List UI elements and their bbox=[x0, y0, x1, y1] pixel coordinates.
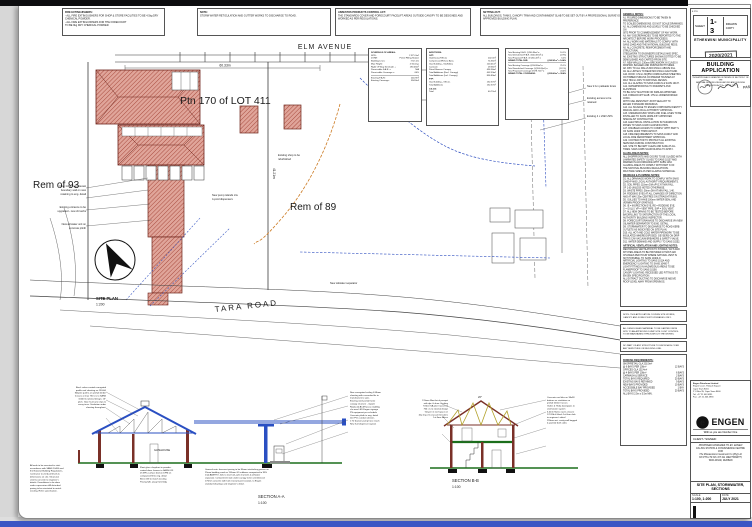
notes-line: NO PART OF ANY STRUCTURE TO ENCROACH OVE… bbox=[623, 344, 684, 347]
notes-line: D10. ALL HOT AND COLD WATER PIPEWORK TO … bbox=[623, 231, 684, 234]
svg-text:Existing 4 x 23kl USTs: Existing 4 x 23kl USTs bbox=[587, 114, 613, 118]
notes-line: A2. ALL DIMENSIONS AND LEVELS TO BE CHEC… bbox=[623, 25, 684, 31]
section-a-label: SECTION A-A bbox=[258, 494, 285, 499]
building-application-box: BUILDING APPLICATION THIS APPROVAL IS GR… bbox=[690, 60, 751, 107]
notes-line: STEELWORK TO ENGINEER'S DETAILS AND SPEC… bbox=[623, 52, 684, 55]
section-b-left-notes: 115mm Maxi brick parapetwith dpc & alum.… bbox=[398, 399, 448, 457]
svg-text:4-prod dispensers: 4-prod dispensers bbox=[212, 197, 233, 201]
additions-row: Total Additions152.37m² bbox=[429, 83, 496, 86]
notes-line: SANS 10400 AND THE NATIONAL BUILDING REG… bbox=[623, 43, 684, 46]
canopy-roof-row bbox=[122, 166, 204, 180]
schedule-of-areas-box: SCHEDULE OF AREAS: SITE:2 371.2m²ZONE:Pe… bbox=[368, 48, 422, 122]
schedule-row: Permissible Coverage =60% bbox=[371, 71, 419, 74]
tara-road-contours bbox=[30, 208, 620, 368]
note-line: STORM WATER RETICULATION AND GUTTER WORK… bbox=[200, 14, 328, 17]
note-box-stormwater: NOTE: STORM WATER RETICULATION AND GUTTE… bbox=[197, 8, 331, 36]
section-b-right-notes: Concrete roof tiles on 38x38battens on s… bbox=[547, 396, 607, 464]
svg-text:e: e bbox=[700, 417, 705, 427]
notes-column: GENERAL NOTES: A1. FIGURED DIMENSIONS TO… bbox=[620, 8, 687, 307]
notes-line: INSULATED WHERE EXPOSED. GEYSERS ON DRIP bbox=[623, 234, 684, 237]
sheet-corner-ref: E 27/9 bbox=[692, 10, 749, 13]
small-note-box-1: NOTE: THIS APPLICATION COVERS SITE WORKS… bbox=[620, 310, 687, 322]
site-plan-scale: 1:200 bbox=[96, 303, 105, 307]
notes-line: D9. STORMWATER TO DISCHARGE TO ROAD KERB bbox=[623, 225, 684, 228]
svg-text:Existing access to be: Existing access to be bbox=[587, 96, 612, 100]
notes-line: A16. ELECTRICAL INSTALLATION IN HAZARDOU… bbox=[623, 120, 684, 123]
north-arrow-icon bbox=[95, 238, 135, 281]
notes-line: ROOF LEVEL AWAY FROM OPENINGS. bbox=[623, 280, 684, 283]
note-title: ASBESTOS PRODUCTS CONTROL ACT: bbox=[338, 11, 468, 14]
section-b-label: SECTION B-B bbox=[452, 478, 479, 483]
engen-tagline: With us you are Number One bbox=[693, 429, 748, 434]
notes-line: A6. EXISTING STRUCTURES SHOWN DOTTED TO … bbox=[623, 55, 684, 58]
notes-line: NOTE: THIS APPLICATION COVERS SITE WORKS… bbox=[623, 313, 684, 316]
notes-line: ALL SHOPFRONTS AND DOORS TO BE GLAZED WI… bbox=[623, 155, 684, 158]
svg-text:New pump islands c/w: New pump islands c/w bbox=[212, 193, 238, 197]
svg-text:New air/water unit on: New air/water unit on bbox=[62, 222, 87, 226]
notes-heading: DRAINAGE & PLUMBING NOTES: bbox=[623, 174, 684, 177]
svg-text:upgraded - new cb kerbs: upgraded - new cb kerbs bbox=[57, 209, 86, 213]
sections-drawing: GATEHOUSE SECTION A-A 1:100 bbox=[30, 372, 615, 520]
elm-dimension-text: 60.33m bbox=[219, 64, 230, 68]
bottom-blue-bar bbox=[0, 521, 752, 527]
note-line: - ALL FIRE EXTINGUISHERS FOR THE FORECOU… bbox=[65, 20, 162, 23]
approval-stamp-icon bbox=[697, 79, 713, 95]
notes-heading: GLASS AREAS NOTES: bbox=[623, 151, 684, 154]
project-description-line: TARA ROAD, DURBAN bbox=[693, 459, 748, 462]
svg-text:New 1.8m high precast: New 1.8m high precast bbox=[59, 184, 86, 188]
sheet-number-box: E 27/9 SHEET 1-3 DRAWN COPY ETHEKWINI MU… bbox=[690, 8, 751, 58]
annotation-line: & painted both sides bbox=[547, 422, 607, 425]
notes-line: D8. FORECOURT DRAINAGE TO DISCHARGE VIA … bbox=[623, 219, 684, 222]
page-left-margin bbox=[0, 4, 18, 521]
sheet-copy-label: DRAWN COPY bbox=[726, 22, 746, 30]
notes-line: A19. CONTRACTOR TO PROTECT ALL EXISTING bbox=[623, 138, 684, 141]
notes-line: SITE PRIOR TO COMMENCEMENT OF ANY WORK. bbox=[623, 31, 684, 34]
svg-text:Existing shop to be: Existing shop to be bbox=[278, 153, 300, 157]
notes-line: A17. DISABLED ACCESS TO COMPLY WITH PART… bbox=[623, 126, 684, 129]
notes-line: TO SCALED DIMENSIONS. DO NOT SCALE DRAWI… bbox=[623, 22, 684, 25]
notes-line: D11. WATER DEMAND AND SUPPLY TO SANS 102… bbox=[623, 240, 684, 243]
note-title: NOTE: bbox=[200, 11, 328, 14]
notes-line: TO BE MAINTAINED THROUGHOUT THE WORKS. bbox=[623, 332, 684, 335]
totals-box: Total Existing F.A.R. @240.90m² =10.1%To… bbox=[505, 48, 569, 120]
revision-box bbox=[691, 503, 750, 519]
field-cell: SCALE 1:100, 1:200 bbox=[691, 494, 721, 502]
notes-line: MECHANICAL VENTILATION TO STORES, WC'S A… bbox=[623, 247, 684, 250]
engen-logo-icon: e bbox=[696, 416, 709, 429]
rem89-label: Rem of 89 bbox=[290, 202, 337, 213]
svg-text:boundary wall on new: boundary wall on new bbox=[61, 188, 86, 192]
notes-line: MAX PANE SIZES AS PER GLAZING SCHEDULE. bbox=[623, 170, 684, 173]
site-plan-title: SITE PLAN bbox=[96, 296, 118, 301]
firm-title-block: Engen Petroleum Limited Engen Court, Thi… bbox=[690, 380, 751, 519]
right-dimension-text: 41.21m bbox=[272, 168, 276, 179]
notes-heading: GENERAL NOTES: bbox=[623, 13, 684, 16]
svg-text:New 2.1m palisade fence: New 2.1m palisade fence bbox=[587, 84, 617, 88]
field-cell: DATE JULY 2021 bbox=[721, 494, 750, 502]
bottom-left-paragraph: All work to be executed in strictaccorda… bbox=[30, 464, 96, 506]
additions-box: ADDITIONS: GFT: Gatehouse/Offices202.0m²… bbox=[426, 48, 499, 126]
annotation-line: 1st floor offices bbox=[398, 416, 448, 419]
note-line: THE STANDARDS COVER AND FORECOURT FACELI… bbox=[338, 14, 468, 21]
notes-line: A13. FORECOURT SLAB: 175mm UNREINFORCED … bbox=[623, 94, 684, 100]
additions-row: Total40.72m² bbox=[429, 90, 496, 93]
notes-line: A5. ALL CONCRETE, REINFORCEMENT AND STRU… bbox=[623, 46, 684, 52]
notes-line: A4. ALL WORK AND MATERIALS TO COMPLY WIT… bbox=[623, 40, 684, 43]
building-application-title: BUILDING APPLICATION bbox=[692, 62, 749, 76]
top-black-bar bbox=[0, 0, 688, 6]
elm-avenue-label: ELM AVENUE bbox=[298, 44, 352, 51]
notes-line: A12. WATERPROOFING TO PARAPETS AND FLASH… bbox=[623, 85, 684, 91]
annotation-line: sheeting throughout. bbox=[36, 406, 106, 409]
small-note-box-3: NO PART OF ANY STRUCTURE TO ENCROACH OVE… bbox=[620, 341, 687, 352]
note-box-fire-extinguishers: FIRE EXTINGUISHERS: - ALL FIRE EXTINGUIS… bbox=[62, 8, 165, 36]
date-stamp: 2020/2021 bbox=[705, 50, 737, 58]
section-a-scale: 1:100 bbox=[258, 501, 267, 505]
note-box-asbestos: ASBESTOS PRODUCTS CONTROL ACT: THE STAND… bbox=[335, 8, 471, 36]
svg-text:concrete plinth: concrete plinth bbox=[69, 226, 86, 230]
annotation-line: standard drawings and engineer's detail. bbox=[205, 482, 337, 485]
paving-spec-paragraph: General note: forecourt paving to be 80m… bbox=[205, 468, 337, 494]
roof-pitch-label: 26° bbox=[478, 395, 482, 399]
notes-line: KITCHEN AREAS TO BE PROVIDED AT MIN 5 AI… bbox=[623, 250, 684, 253]
municipality-label: ETHEKWINI MUNICIPALITY bbox=[692, 38, 749, 42]
svg-text:Existing entrance to be: Existing entrance to be bbox=[60, 205, 87, 209]
svg-text:New oil/water separator: New oil/water separator bbox=[330, 281, 357, 285]
svg-text:retained: retained bbox=[587, 100, 597, 104]
parking-requirements-table: PARKING REQUIREMENTS: SHOP/RETAIL GLA 20… bbox=[620, 354, 687, 446]
signature-icon bbox=[717, 82, 739, 92]
notes-line: TRAYS C/W VACUUM BREAKERS & SAFETY VALVE… bbox=[623, 237, 684, 240]
notes-line: CHANGES PER HOUR WHERE NATURAL VENT IS bbox=[623, 253, 684, 256]
note-line: - ALL FIRE EXTINGUISHERS FOR SHOP & STOR… bbox=[65, 14, 162, 21]
svg-text:refurbished: refurbished bbox=[278, 157, 292, 161]
drawing-sheet: FIRE EXTINGUISHERS: - ALL FIRE EXTINGUIS… bbox=[0, 0, 752, 527]
ptn-label: Ptn 170 of LOT 411 bbox=[180, 95, 271, 107]
sheet-number: 1-3 bbox=[707, 17, 724, 35]
section-a-left-notes: Roof: colour coated corrugatedprofile ro… bbox=[36, 386, 106, 434]
svg-text:retaining to eng. detail: retaining to eng. detail bbox=[60, 192, 86, 196]
engen-wordmark: ENGEN bbox=[711, 417, 744, 427]
room-label: GATEHOUSE bbox=[154, 448, 170, 452]
notes-line: A18. FIRE REQUIREMENTS TO SANS 10400-T A… bbox=[623, 132, 684, 135]
notes-heading: ARTIFICIAL VENTILATION AND LIGHTING NOTE… bbox=[623, 244, 684, 247]
additions-row: Total Additions (Incl. Canopy)836.89m² bbox=[429, 73, 496, 76]
parking-title: PARKING REQUIREMENTS: bbox=[623, 359, 684, 362]
firm-address-line: Fax: +27 21 403 4990 bbox=[693, 396, 748, 399]
notes-line: A1. FIGURED DIMENSIONS TO BE TAKEN IN PR… bbox=[623, 16, 684, 22]
annotation-line: existing. Refer specification. bbox=[30, 490, 96, 493]
small-note-box-2: ALL DEMOLISHED MATERIAL TO BE CARTED FRO… bbox=[620, 324, 687, 339]
schedule-row: Existing Coverage:594.8m² bbox=[371, 79, 419, 82]
client-label: CLIENT / SIGNED: bbox=[691, 436, 750, 443]
drawing-title: SITE PLAN, STORMWATER, SECTIONS bbox=[691, 482, 750, 494]
sheet-label: SHEET bbox=[695, 24, 705, 28]
notes-line: A3. ANY DISCREPANCIES TO BE REPORTED TO … bbox=[623, 34, 684, 37]
notes-line: ALL DEMOLISHED MATERIAL TO BE CARTED FRO… bbox=[623, 327, 684, 330]
notes-line: A20. SITE TO BE KEPT CLEAN AND SAFE AT A… bbox=[623, 144, 684, 147]
passed-stamp-text: PASSED bbox=[743, 84, 751, 89]
tara-road-label: TARA ROAD bbox=[214, 298, 278, 314]
note-title: FIRE EXTINGUISHERS: bbox=[65, 11, 162, 14]
section-b-scale: 1:100 bbox=[452, 485, 461, 489]
